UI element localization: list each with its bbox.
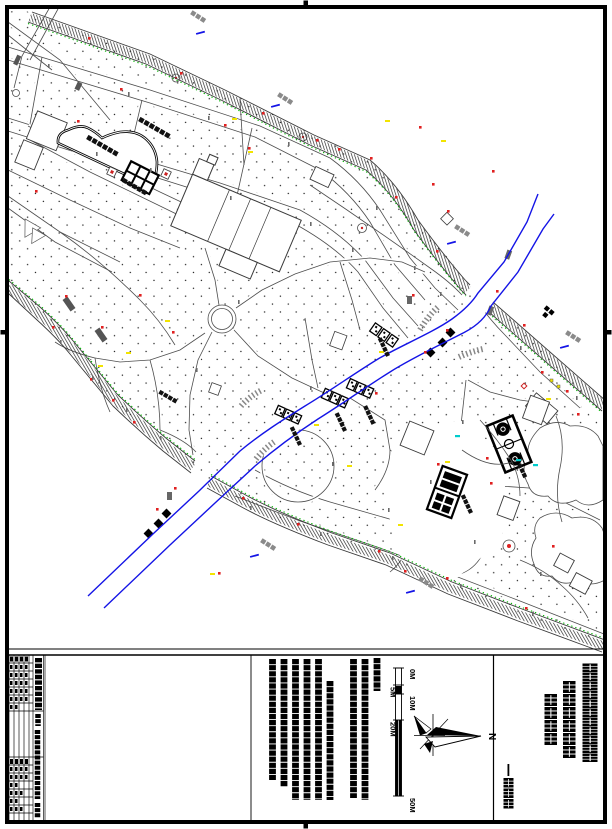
svg-text:20M: 20M xyxy=(389,722,398,737)
svg-text:50M: 50M xyxy=(408,798,417,813)
svg-text:10M: 10M xyxy=(408,696,417,711)
svg-text:N: N xyxy=(486,733,497,740)
svg-text:0M: 0M xyxy=(408,669,417,679)
svg-text:5M: 5M xyxy=(389,687,398,697)
